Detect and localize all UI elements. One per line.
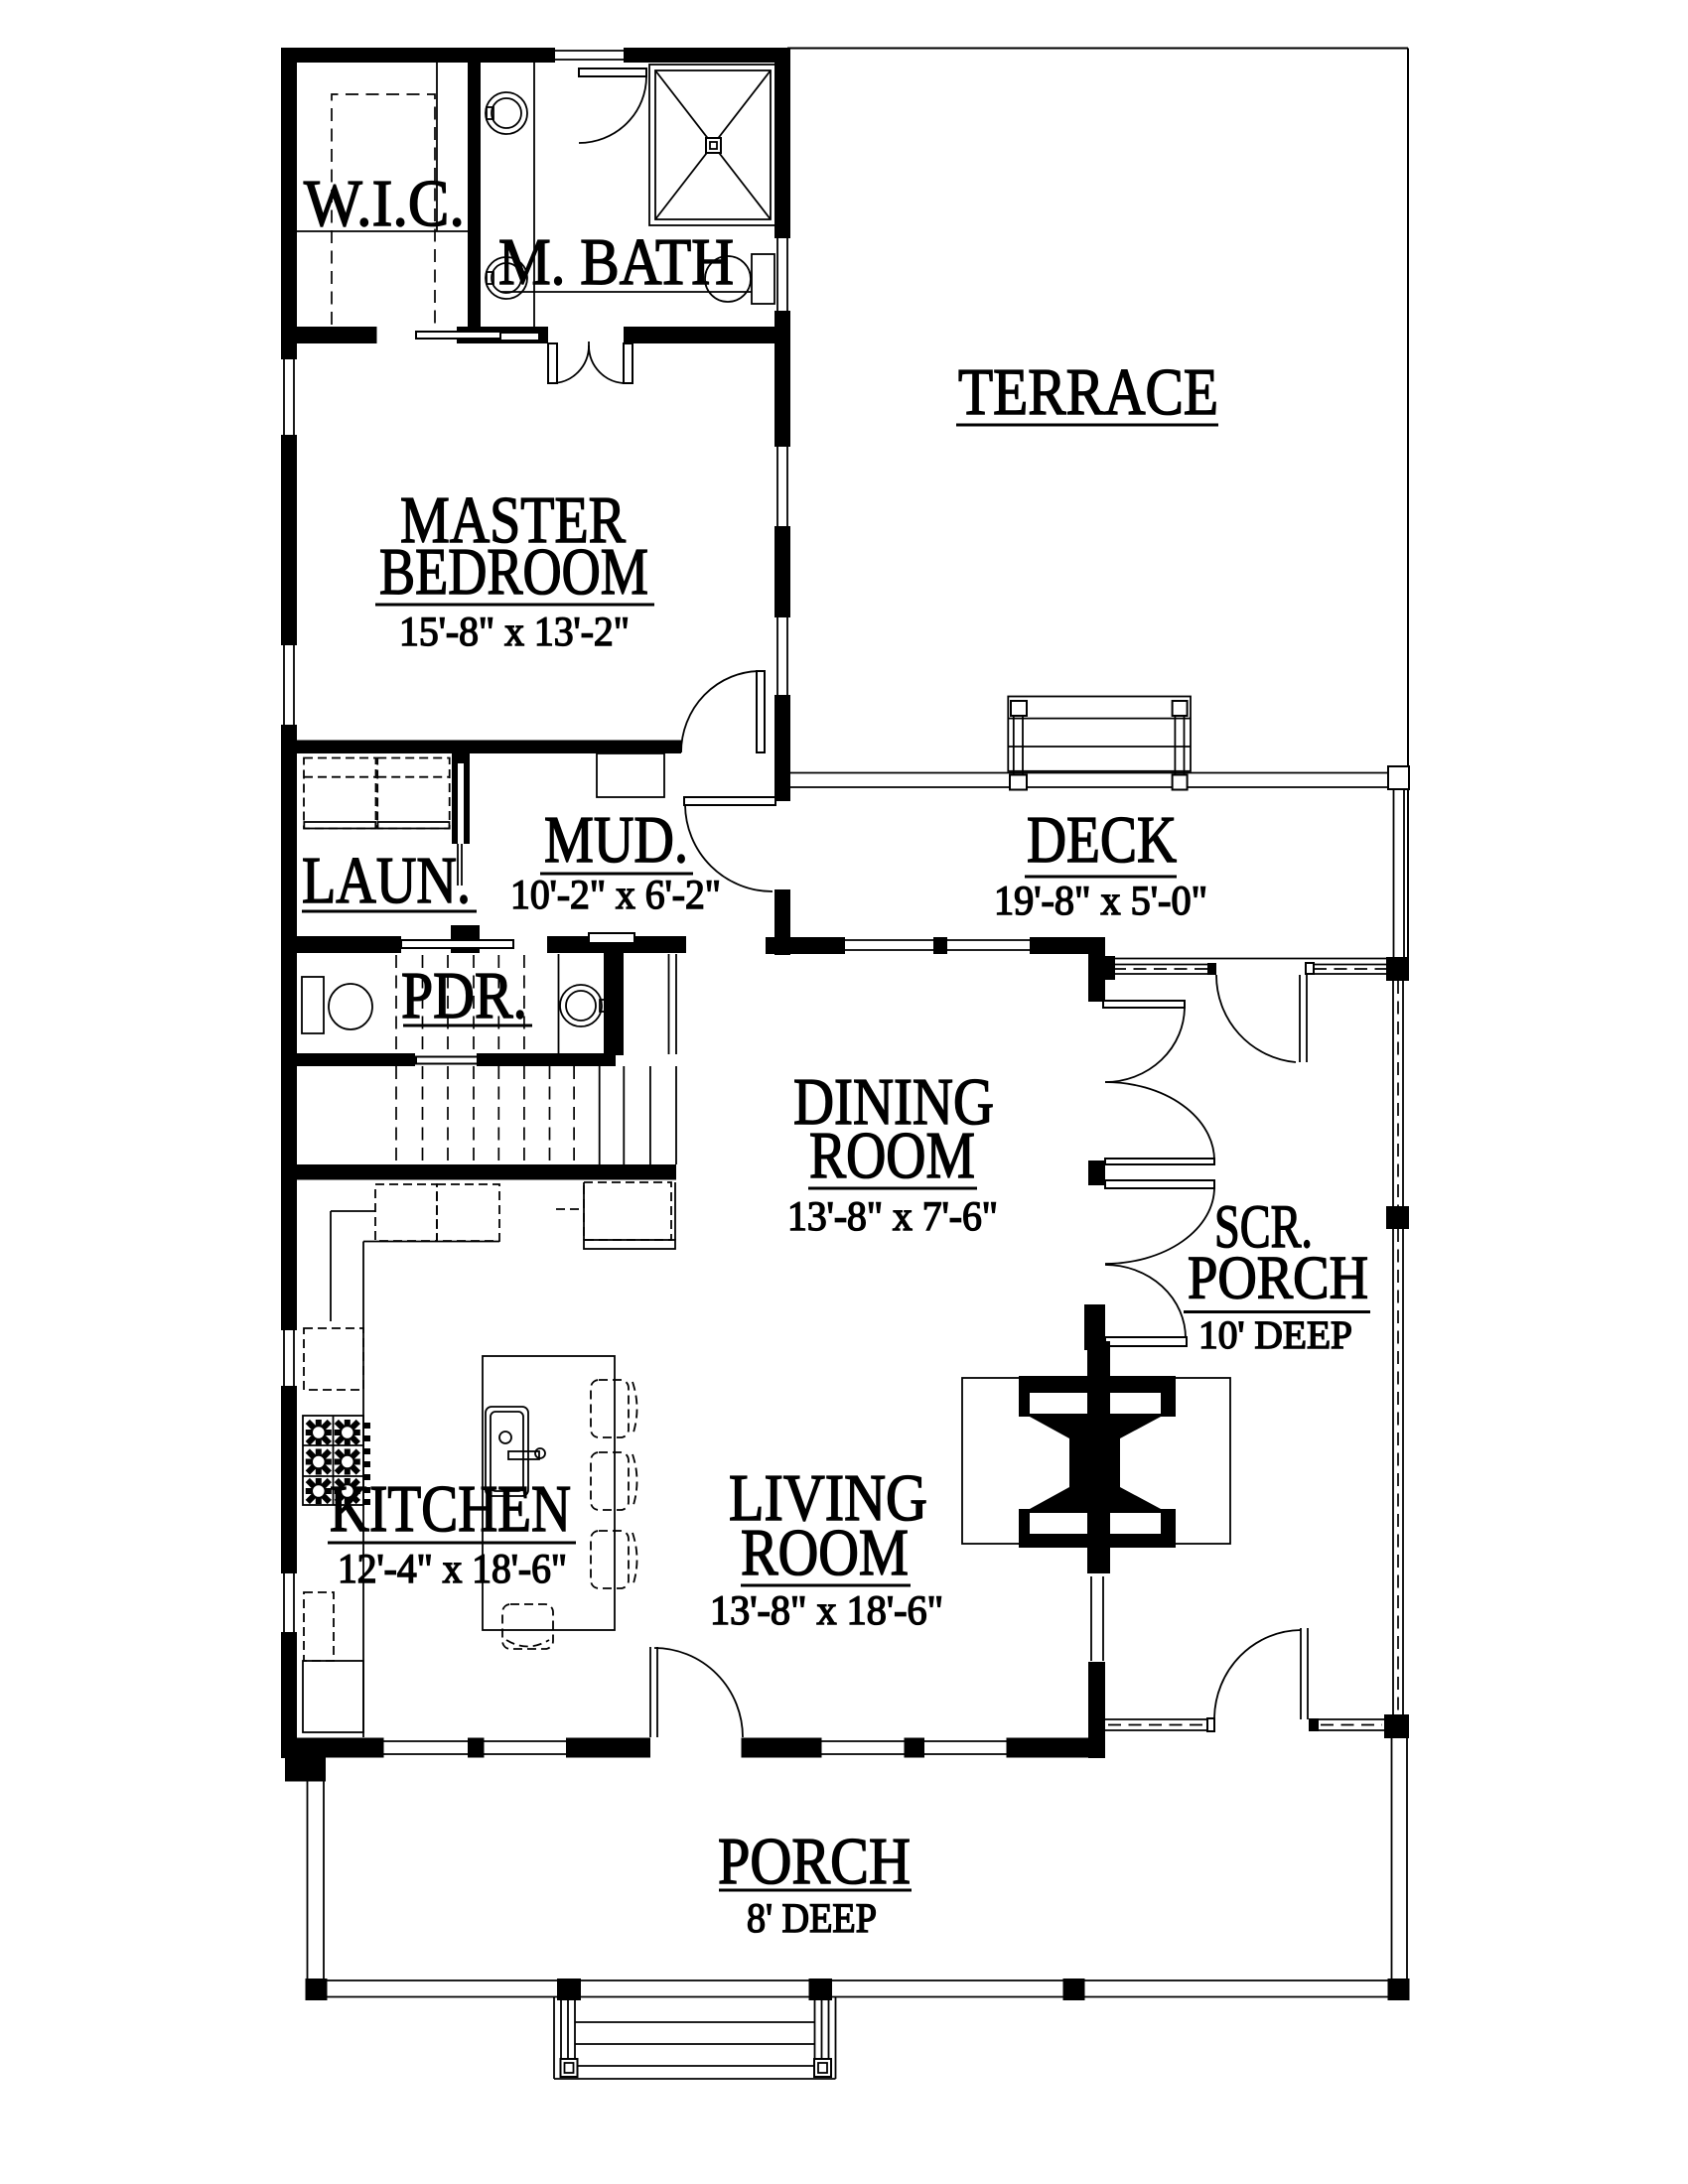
svg-text:M. BATH: M. BATH — [498, 225, 734, 299]
svg-text:DECK: DECK — [1027, 803, 1177, 877]
svg-text:BEDROOM: BEDROOM — [379, 535, 648, 609]
svg-text:13'-8" x 18'-6": 13'-8" x 18'-6" — [710, 1588, 943, 1634]
svg-text:ROOM: ROOM — [809, 1119, 975, 1192]
svg-text:W.I.C.: W.I.C. — [304, 167, 465, 240]
svg-text:19'-8" x 5'-0": 19'-8" x 5'-0" — [994, 879, 1207, 924]
svg-text:LAUN.: LAUN. — [302, 844, 471, 917]
svg-text:12'-4" x 18'-6": 12'-4" x 18'-6" — [338, 1547, 567, 1592]
svg-text:TERRACE: TERRACE — [958, 355, 1218, 429]
svg-text:10'-2" x 6'-2": 10'-2" x 6'-2" — [510, 873, 721, 918]
svg-text:8' DEEP: 8' DEEP — [747, 1896, 877, 1942]
svg-text:PORCH: PORCH — [718, 1825, 911, 1898]
svg-text:10' DEEP: 10' DEEP — [1198, 1312, 1352, 1357]
svg-text:ROOM: ROOM — [741, 1516, 909, 1589]
svg-text:KITCHEN: KITCHEN — [330, 1472, 571, 1546]
svg-text:13'-8" x 7'-6": 13'-8" x 7'-6" — [787, 1194, 998, 1240]
svg-text:PDR.: PDR. — [401, 959, 527, 1032]
svg-text:15'-8" x 13'-2": 15'-8" x 13'-2" — [399, 610, 630, 655]
svg-text:PORCH: PORCH — [1188, 1245, 1368, 1312]
svg-text:MUD.: MUD. — [544, 803, 688, 877]
